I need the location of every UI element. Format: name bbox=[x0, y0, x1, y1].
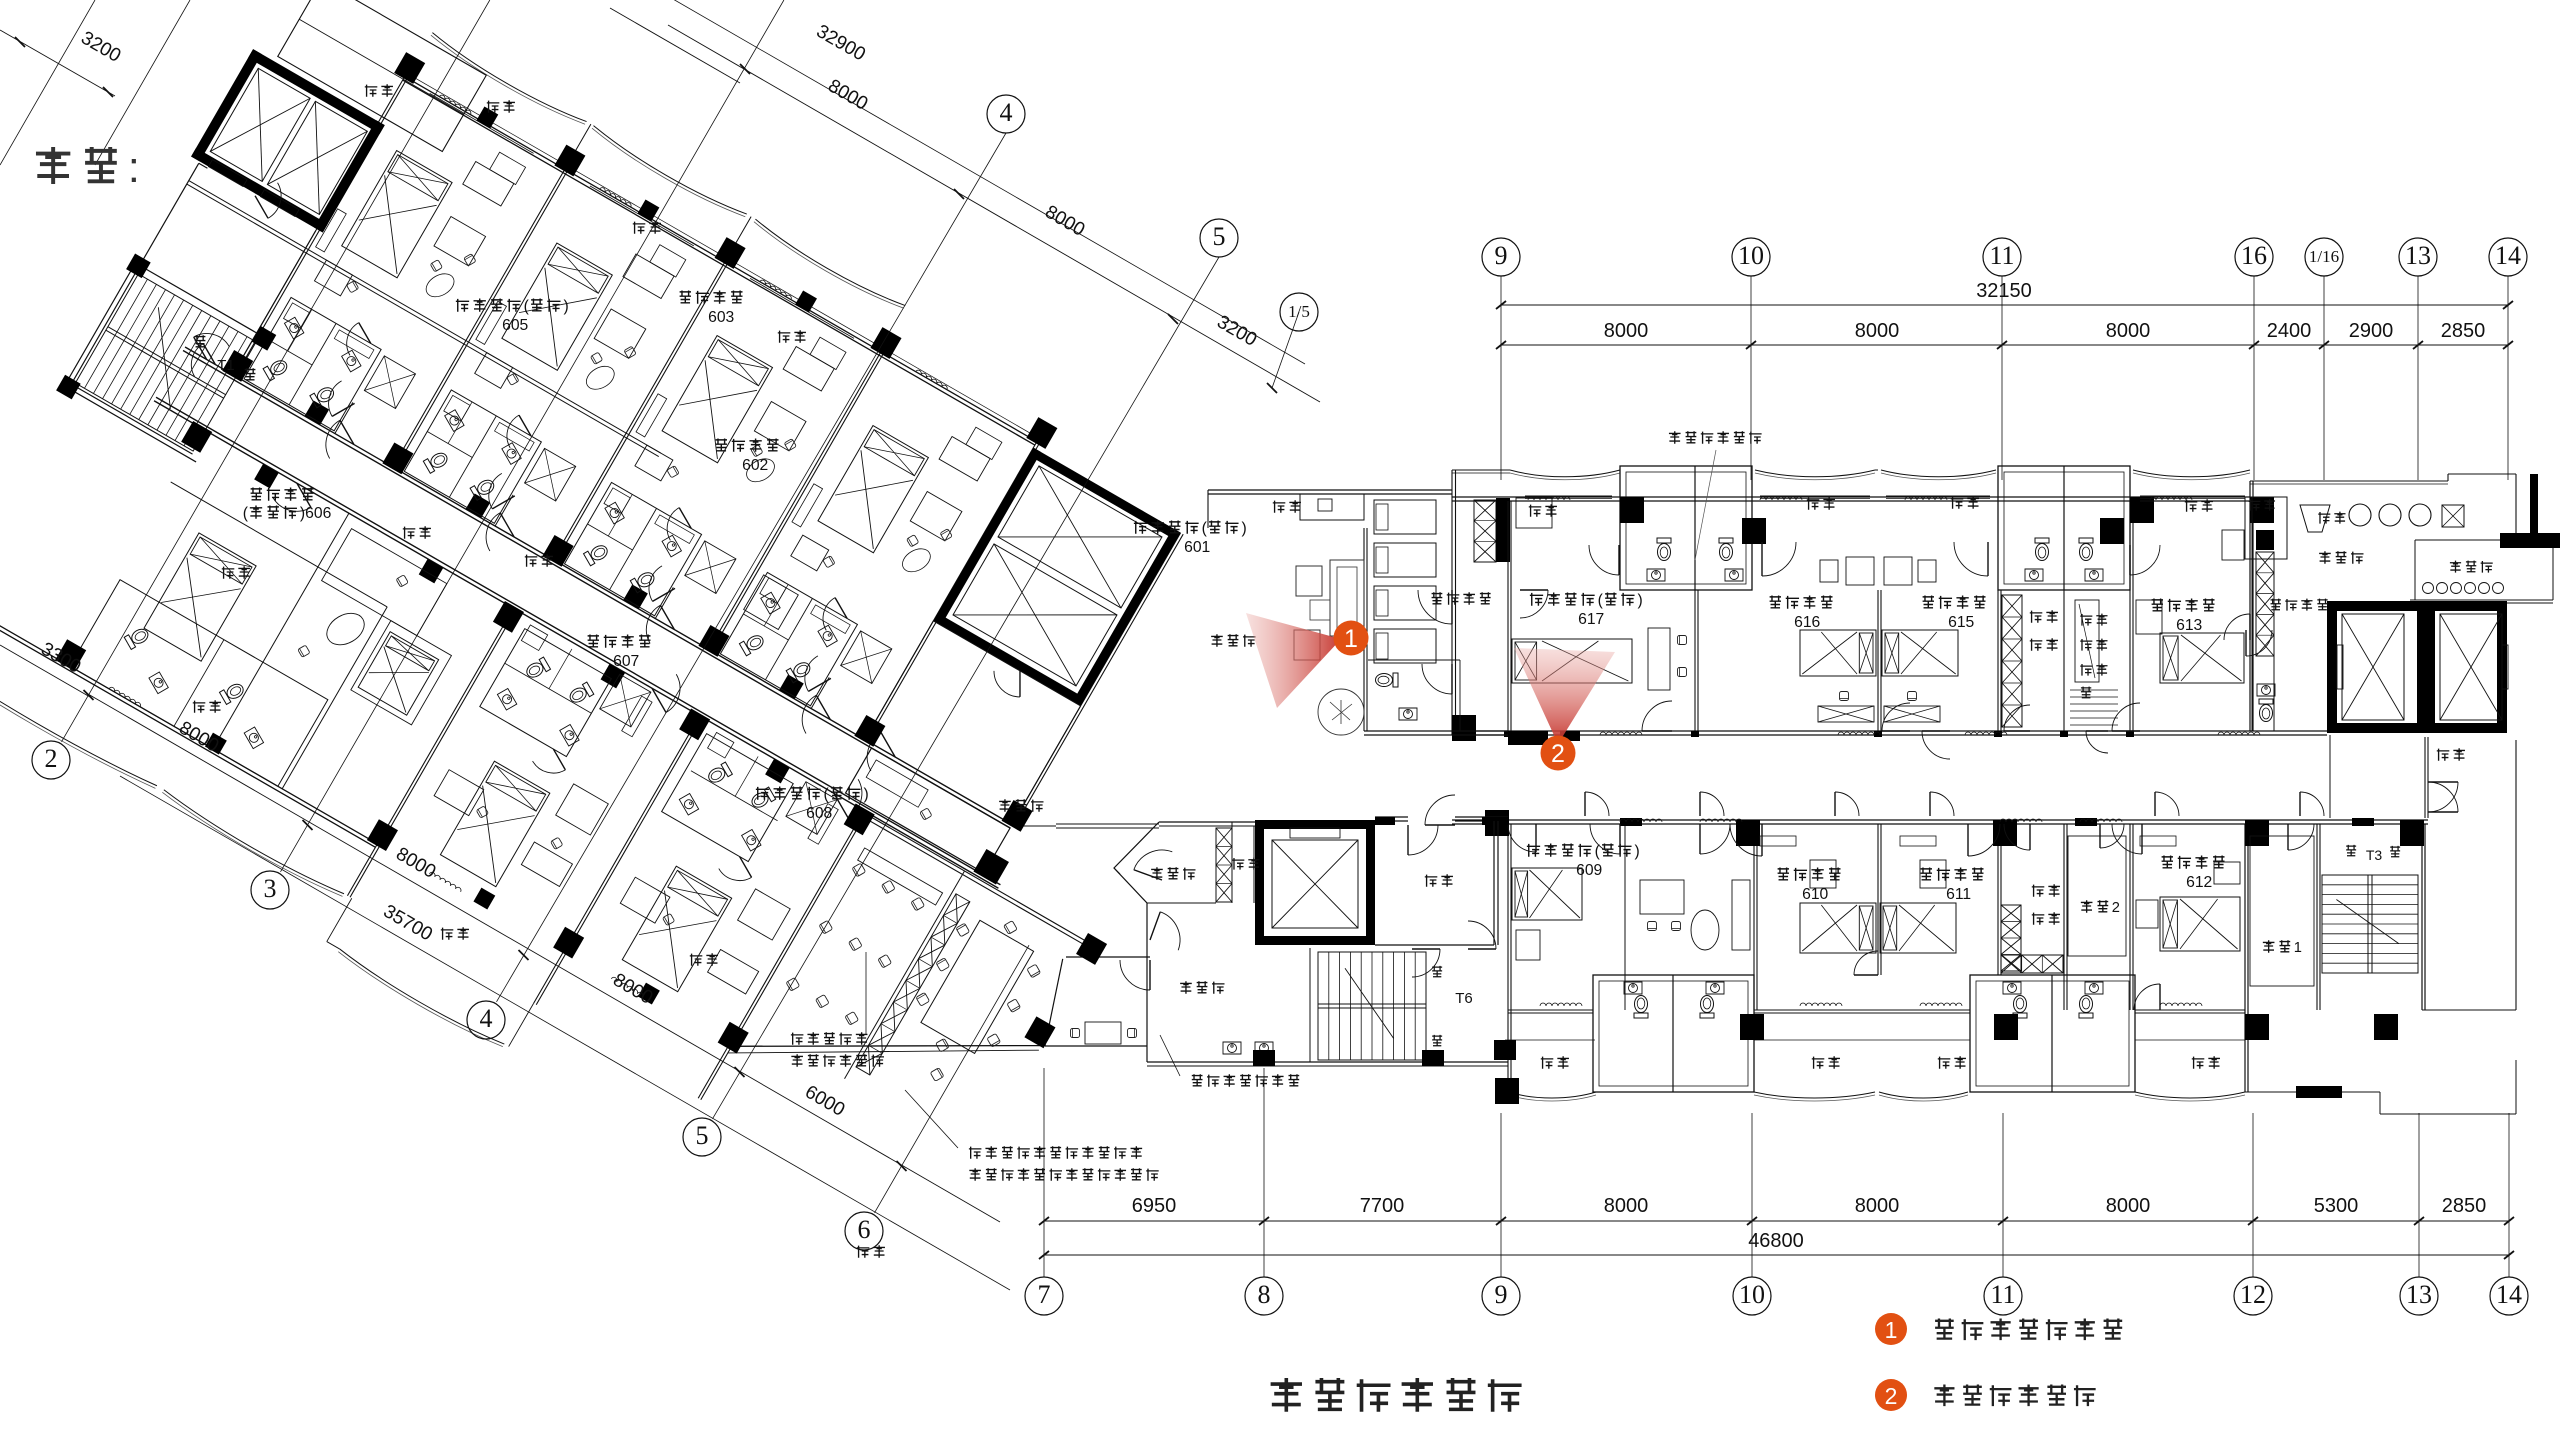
svg-text:8: 8 bbox=[1258, 1280, 1271, 1309]
svg-text:608: 608 bbox=[806, 805, 832, 822]
svg-text:13: 13 bbox=[2406, 1280, 2432, 1309]
svg-text:(: ( bbox=[824, 786, 830, 803]
svg-text:1/5: 1/5 bbox=[1288, 302, 1310, 321]
svg-text:): ) bbox=[1242, 520, 1247, 537]
svg-text:6950: 6950 bbox=[1132, 1195, 1177, 1217]
svg-text:8000: 8000 bbox=[1604, 320, 1649, 342]
svg-text:10: 10 bbox=[1738, 241, 1764, 270]
svg-text:2: 2 bbox=[1885, 1383, 1898, 1409]
svg-text:(: ( bbox=[243, 505, 249, 522]
svg-text:611: 611 bbox=[1946, 886, 1971, 903]
svg-text:8000: 8000 bbox=[2106, 320, 2151, 342]
svg-text:(: ( bbox=[1595, 843, 1601, 860]
svg-text:617: 617 bbox=[1578, 611, 1604, 628]
svg-text:T6: T6 bbox=[1455, 990, 1473, 1007]
svg-text:1: 1 bbox=[1885, 1317, 1898, 1343]
svg-text:2: 2 bbox=[2112, 900, 2120, 916]
svg-text:7: 7 bbox=[1038, 1280, 1051, 1309]
svg-text:12: 12 bbox=[2240, 1280, 2266, 1309]
svg-text:616: 616 bbox=[1794, 614, 1820, 631]
svg-text:2850: 2850 bbox=[2441, 320, 2486, 342]
svg-text:610: 610 bbox=[1802, 886, 1828, 903]
svg-text:(: ( bbox=[1598, 592, 1604, 609]
svg-text:3: 3 bbox=[264, 874, 277, 903]
svg-text:10: 10 bbox=[1739, 1280, 1765, 1309]
svg-text:14: 14 bbox=[2496, 1280, 2522, 1309]
svg-text:11: 11 bbox=[1990, 1280, 2015, 1309]
svg-text:): ) bbox=[1635, 843, 1640, 860]
svg-text:11: 11 bbox=[1989, 241, 2014, 270]
svg-text:2: 2 bbox=[45, 744, 58, 773]
svg-text:8000: 8000 bbox=[2106, 1195, 2151, 1217]
svg-text:): ) bbox=[1638, 592, 1643, 609]
svg-text:32150: 32150 bbox=[1976, 280, 2032, 302]
svg-text:5: 5 bbox=[696, 1121, 709, 1150]
svg-text:(: ( bbox=[524, 298, 530, 315]
svg-text:16: 16 bbox=[2241, 241, 2267, 270]
svg-text:14: 14 bbox=[2495, 241, 2521, 270]
svg-text:612: 612 bbox=[2186, 874, 2212, 891]
svg-text:613: 613 bbox=[2176, 617, 2202, 634]
svg-text:5300: 5300 bbox=[2314, 1195, 2359, 1217]
svg-text:7700: 7700 bbox=[1360, 1195, 1405, 1217]
svg-text:13: 13 bbox=[2405, 241, 2431, 270]
svg-text:5: 5 bbox=[1213, 222, 1226, 251]
svg-text:): ) bbox=[564, 298, 569, 315]
svg-text:9: 9 bbox=[1495, 1280, 1508, 1309]
svg-text:2850: 2850 bbox=[2442, 1195, 2487, 1217]
svg-text:2: 2 bbox=[1551, 740, 1565, 768]
svg-text:615: 615 bbox=[1948, 614, 1974, 631]
svg-text:8000: 8000 bbox=[1604, 1195, 1649, 1217]
svg-text:6: 6 bbox=[858, 1215, 871, 1244]
svg-text:1/16: 1/16 bbox=[2309, 247, 2339, 266]
svg-text:(: ( bbox=[1202, 520, 1208, 537]
svg-text:T1: T1 bbox=[217, 357, 235, 374]
svg-text:2400: 2400 bbox=[2267, 320, 2312, 342]
svg-text:609: 609 bbox=[1576, 862, 1602, 879]
svg-text:1: 1 bbox=[1344, 625, 1358, 653]
svg-text::: : bbox=[128, 143, 140, 192]
svg-text:601: 601 bbox=[1184, 539, 1210, 556]
svg-text:8000: 8000 bbox=[1855, 320, 1900, 342]
svg-text:)606: )606 bbox=[300, 505, 332, 522]
svg-text:2900: 2900 bbox=[2349, 320, 2394, 342]
svg-text:605: 605 bbox=[502, 317, 528, 334]
svg-text:4: 4 bbox=[480, 1004, 493, 1033]
svg-text:): ) bbox=[864, 786, 869, 803]
svg-text:603: 603 bbox=[708, 309, 734, 326]
svg-text:T3: T3 bbox=[2366, 847, 2383, 863]
svg-text:46800: 46800 bbox=[1748, 1230, 1804, 1252]
svg-text:9: 9 bbox=[1495, 241, 1508, 270]
svg-text:1: 1 bbox=[2294, 940, 2302, 956]
svg-text:4: 4 bbox=[1000, 98, 1013, 127]
svg-text:8000: 8000 bbox=[1855, 1195, 1900, 1217]
svg-text:607: 607 bbox=[613, 653, 639, 670]
svg-text:602: 602 bbox=[742, 457, 768, 474]
